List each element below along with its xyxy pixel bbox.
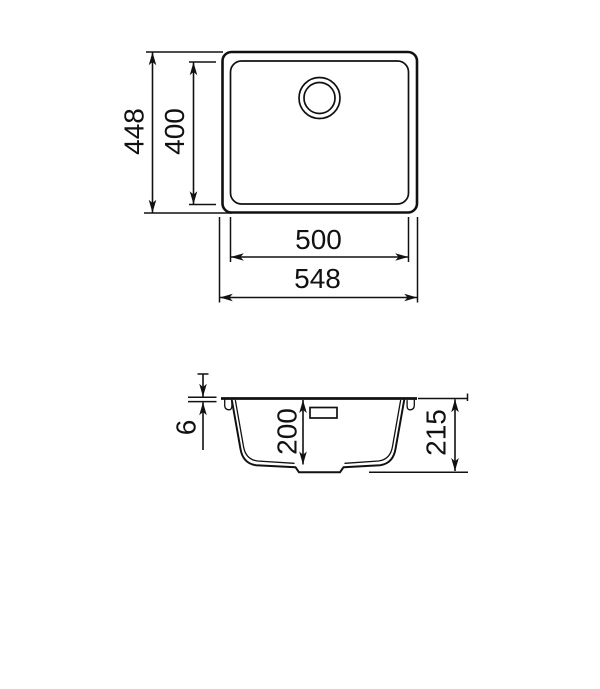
sink-outer-rim-top-view	[223, 52, 418, 213]
section-right-lip	[407, 400, 414, 410]
section-view: 6 200 215	[171, 374, 469, 472]
section-bowl-inner-right	[345, 401, 401, 464]
drain-inner-circle	[304, 83, 335, 114]
section-left-lip	[225, 400, 232, 410]
dim-448-label: 448	[119, 108, 150, 155]
drain-outer-circle	[299, 78, 340, 119]
dim-200-label: 200	[272, 408, 303, 455]
dim-inner-width: 500	[231, 217, 409, 262]
dim-500-label: 500	[295, 224, 342, 255]
dim-bowl-depth: 200	[272, 400, 304, 465]
overflow-opening	[310, 408, 337, 419]
dim-400-label: 400	[159, 108, 190, 155]
top-view: 448 400 500 548	[119, 52, 418, 303]
dim-6-label: 6	[171, 420, 202, 436]
technical-drawing-canvas: 448 400 500 548	[0, 0, 600, 689]
dim-inner-height: 400	[159, 62, 216, 205]
dim-548-label: 548	[294, 263, 341, 294]
dim-215-label: 215	[421, 409, 452, 456]
sink-drawing-svg: 448 400 500 548	[0, 0, 600, 689]
dim-overall-depth: 215	[369, 394, 468, 473]
dim-rim-thickness: 6	[171, 374, 217, 450]
